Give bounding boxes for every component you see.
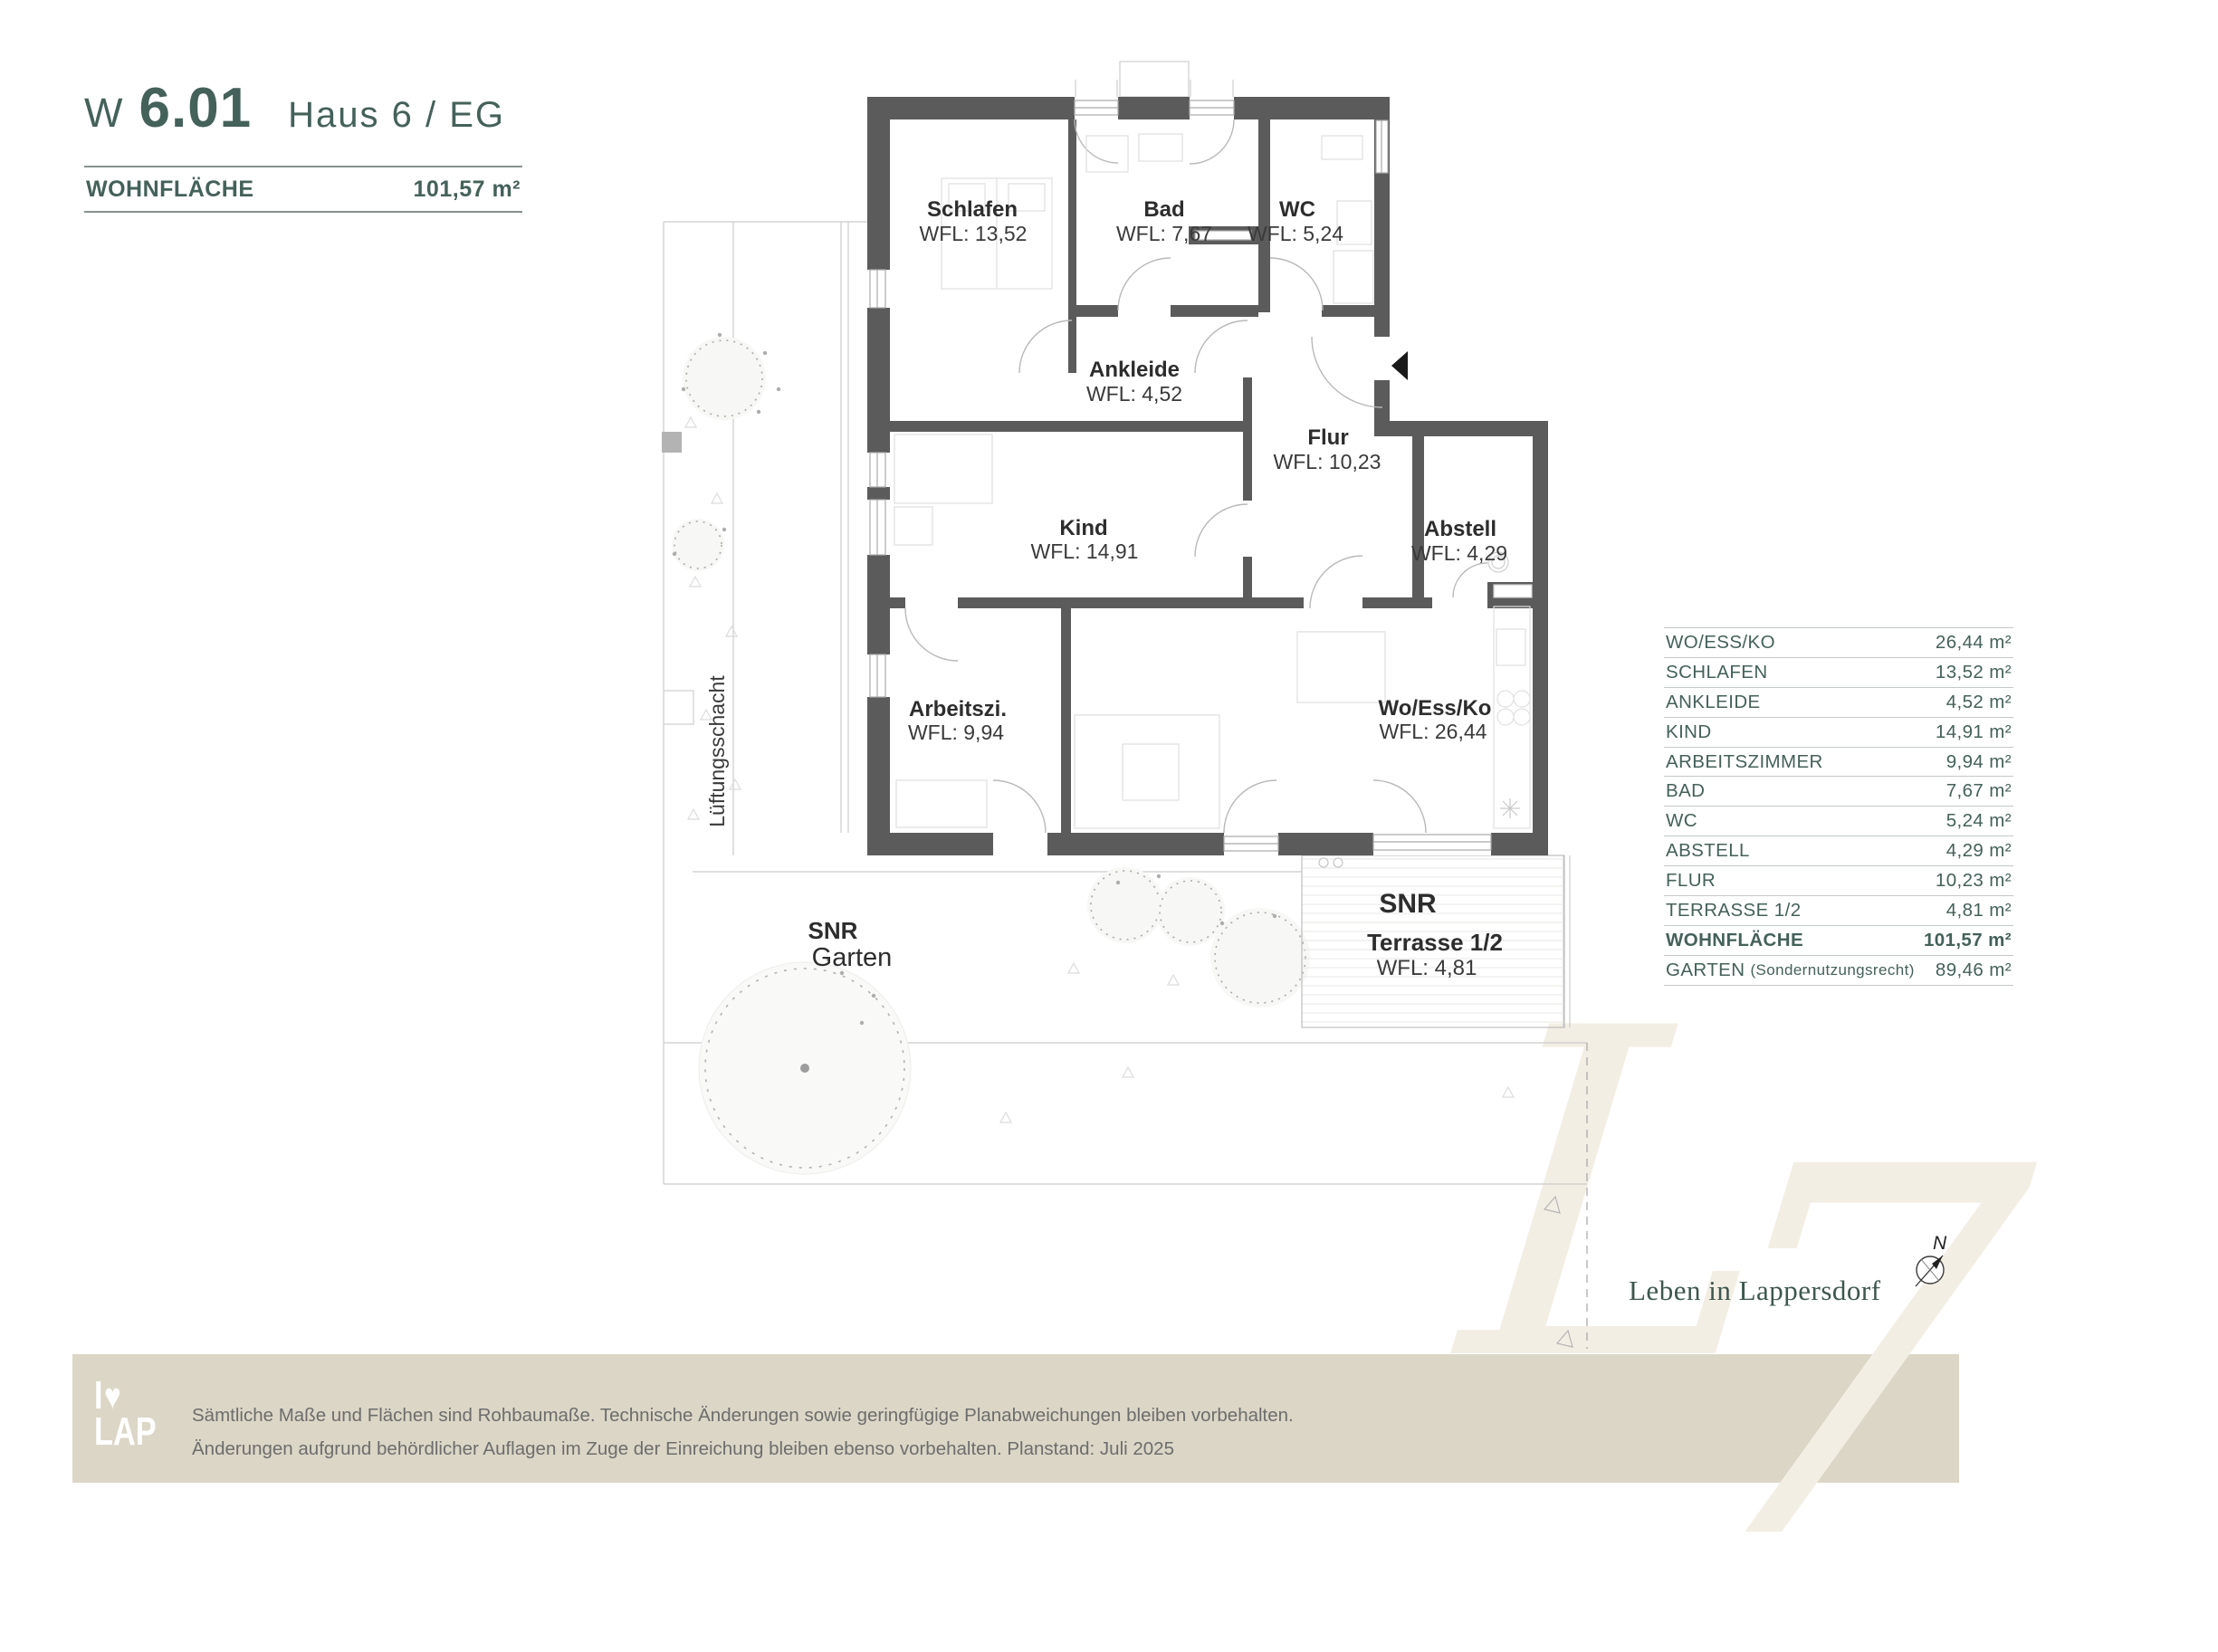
table-row: WC5,24 m²: [1664, 807, 2013, 836]
living-area-value: 101,57 m²: [414, 177, 521, 203]
ilovelap-logo: I♥ LAP: [94, 1378, 157, 1451]
room-label-woessko: Wo/Ess/Ko: [1379, 696, 1492, 721]
table-row: SCHLAFEN13,52 m²: [1664, 658, 2013, 688]
unit-prefix: W: [84, 90, 124, 137]
terrace-wfl-label: WFL: 4,81: [1377, 956, 1477, 980]
room-wfl-abstell: WFL: 4,29: [1411, 541, 1507, 565]
footer-disclaimer: Sämtliche Maße und Flächen sind Rohbauma…: [192, 1399, 1294, 1466]
room-wfl-woessko: WFL: 26,44: [1380, 720, 1487, 743]
room-label-schlafen: Schlafen: [927, 197, 1018, 222]
garden-snr-label: SNR: [808, 917, 858, 944]
room-label-wc: WC: [1279, 197, 1315, 222]
table-row: TERRASSE 1/24,81 m²: [1664, 896, 2013, 926]
living-area-header: WOHNFLÄCHE 101,57 m²: [84, 167, 522, 213]
terrace-name-label: Terrasse 1/2: [1367, 929, 1503, 956]
room-label-kind: Kind: [1059, 516, 1107, 540]
table-row: ARBEITSZIMMER9,94 m²: [1664, 748, 2013, 778]
table-row: WO/ESS/KO26,44 m²: [1664, 628, 2013, 658]
room-wfl-bad: WFL: 7,67: [1116, 222, 1212, 245]
table-row: ABSTELL4,29 m²: [1664, 836, 2013, 866]
room-wfl-flur: WFL: 10,23: [1274, 450, 1381, 473]
disclaimer-line-2: Änderungen aufgrund behördlicher Auflage…: [192, 1432, 1294, 1466]
room-label-bad: Bad: [1143, 197, 1184, 222]
compass: N: [1916, 1233, 1947, 1286]
terrace-snr-label: SNR: [1379, 889, 1437, 919]
room-label-ankleide: Ankleide: [1089, 358, 1180, 382]
vent-shaft-label: Lüftungsschacht: [705, 675, 729, 827]
room-wfl-kind: WFL: 14,91: [1031, 540, 1139, 563]
area-table: WO/ESS/KO26,44 m² SCHLAFEN13,52 m² ANKLE…: [1664, 627, 2013, 986]
room-wfl-schlafen: WFL: 13,52: [920, 222, 1028, 245]
table-row-garden: GARTEN(Sondernutzungsrecht)89,46 m²: [1664, 956, 2013, 986]
unit-number: 6.01: [139, 76, 252, 140]
sheet-title: W 6.01 Haus 6 / EG: [84, 76, 522, 140]
room-label-arbeitszimmer: Arbeitszi.: [909, 697, 1007, 721]
room-label-flur: Flur: [1307, 425, 1348, 450]
brand-tagline: Leben in Lappersdorf: [1629, 1275, 1881, 1307]
table-row: ANKLEIDE4,52 m²: [1664, 688, 2013, 718]
building-level: Haus 6 / EG: [288, 95, 505, 136]
table-row: FLUR10,23 m²: [1664, 866, 2013, 896]
garden-name-label: Garten: [812, 943, 893, 972]
table-row: KIND14,91 m²: [1664, 718, 2013, 748]
table-row-total: WOHNFLÄCHE101,57 m²: [1664, 926, 2013, 956]
room-label-abstell: Abstell: [1424, 517, 1496, 541]
title-block: W 6.01 Haus 6 / EG WOHNFLÄCHE 101,57 m²: [84, 76, 522, 213]
living-area-label: WOHNFLÄCHE: [86, 177, 254, 203]
disclaimer-line-1: Sämtliche Maße und Flächen sind Rohbauma…: [192, 1399, 1294, 1432]
room-wfl-arbeitszimmer: WFL: 9,94: [908, 721, 1004, 744]
room-wfl-wc: WFL: 5,24: [1248, 222, 1343, 245]
entrance-arrow: [1391, 351, 1408, 380]
room-wfl-ankleide: WFL: 4,52: [1086, 382, 1182, 406]
table-row: BAD7,67 m²: [1664, 777, 2013, 807]
compass-north-label: N: [1933, 1233, 1947, 1254]
